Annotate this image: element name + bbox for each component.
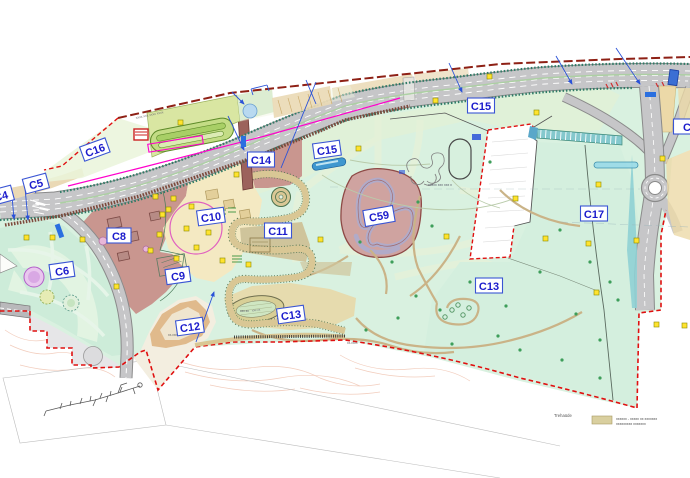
- svg-text:C8: C8: [112, 231, 126, 243]
- svg-text:Trehaüde: Trehaüde: [554, 413, 572, 418]
- svg-text:xxxxxx - xxxxx xx xxxxxxx: xxxxxx - xxxxx xx xxxxxxx: [616, 417, 657, 421]
- svg-text:C14: C14: [251, 155, 272, 167]
- svg-text:xx-xxx: xx-xxx: [168, 333, 177, 337]
- svg-text:C6: C6: [54, 265, 70, 279]
- svg-text:C17: C17: [584, 209, 604, 221]
- svg-text:xxxxx xxx xxx x: xxxxx xxx xxx x: [428, 183, 452, 187]
- svg-text:C9: C9: [170, 270, 186, 284]
- svg-text:xxxxxxxxx xxxxxxx: xxxxxxxxx xxxxxxx: [616, 422, 646, 426]
- svg-text:C13: C13: [479, 281, 499, 293]
- svg-text:xx-xxxx: xx-xxxx: [347, 341, 358, 345]
- svg-text:xxx xx: xxx xx: [240, 309, 249, 313]
- svg-text:C15: C15: [471, 101, 491, 113]
- svg-text:C: C: [683, 122, 690, 134]
- svg-text:C11: C11: [268, 226, 288, 238]
